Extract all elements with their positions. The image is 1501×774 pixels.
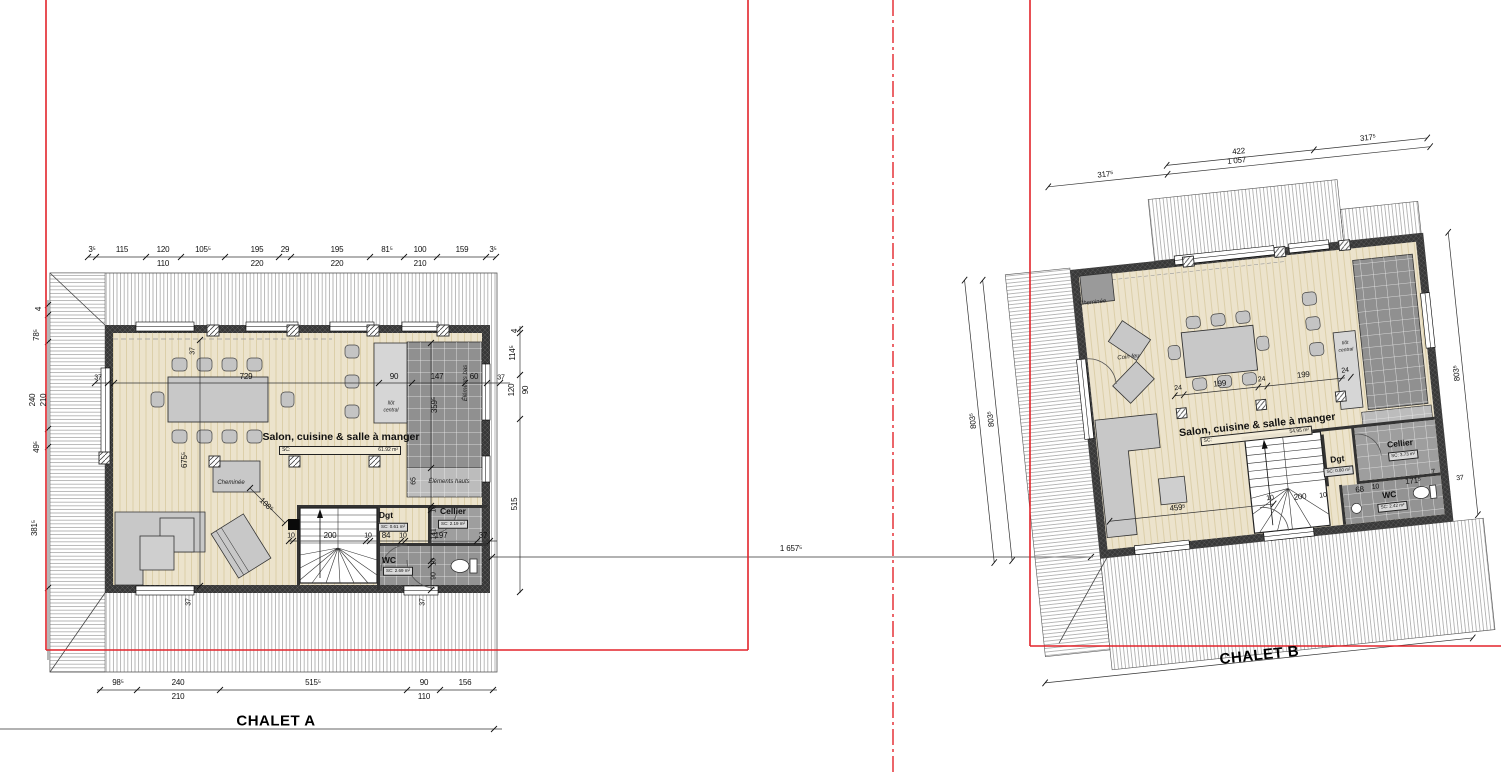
dim-label: 200 xyxy=(1293,493,1307,502)
feature-label-cheminee: Cheminée xyxy=(217,480,244,486)
dim-label: 199 xyxy=(1297,371,1311,380)
dim-label: 37 xyxy=(186,598,193,605)
between-chalets-dim: 1 657⁵ xyxy=(780,545,802,553)
room-label-dgt: Dgt xyxy=(1330,454,1345,464)
dim-label: 210 xyxy=(40,394,48,407)
dim-label: 37 xyxy=(190,347,197,354)
dim-label: 240 xyxy=(29,394,37,407)
feature-label-ilot: Ilôt xyxy=(388,402,395,407)
dim-label: 60 xyxy=(470,373,479,381)
dim-label: 90 xyxy=(431,572,438,579)
dim-label: 195 xyxy=(251,246,264,254)
dim-label: 381⁵ xyxy=(31,520,39,536)
dim-label: 105⁵ xyxy=(195,246,211,254)
feature-label-ilot: central xyxy=(383,409,398,414)
dim-label: 199 xyxy=(1213,379,1227,388)
dim-label: 147 xyxy=(431,373,444,381)
dim-label: 120 xyxy=(508,384,516,397)
dim-label: 24 xyxy=(1258,376,1266,384)
dim-label: 10 xyxy=(1319,492,1327,500)
chalet-b-table xyxy=(1181,325,1257,377)
dim-label: 84 xyxy=(382,532,391,540)
dim-label: 110 xyxy=(157,260,169,268)
dim-label: 10 xyxy=(431,558,438,565)
dim-label: 359⁵ xyxy=(431,397,439,413)
chalet-a-bar-chairs xyxy=(345,345,359,418)
sc-value: 54.95 m² xyxy=(1289,428,1309,435)
dim-label: 37 xyxy=(497,375,504,382)
sc-value: 61.92 m² xyxy=(378,448,398,453)
dim-label: 220 xyxy=(251,260,264,268)
floor-plan-canvas: 3⁵ 115 120 105⁵ 195 29 195 81⁵ 100 159 3… xyxy=(0,0,1501,774)
dim-label: 7 xyxy=(1431,468,1435,475)
dim-label: 675⁵ xyxy=(181,452,189,468)
dim-label: 100 xyxy=(414,246,427,254)
dim-label: 195 xyxy=(331,246,344,254)
dim-label: 120 xyxy=(157,246,170,254)
sc-label: SC: xyxy=(282,448,290,453)
dim-label: 10 xyxy=(1371,483,1379,491)
dim-label: 10 xyxy=(431,505,438,512)
dim-label: 90 xyxy=(522,386,530,395)
sc-label: SC: xyxy=(1203,438,1212,444)
dim-label: 115 xyxy=(116,246,128,254)
dim-label: 10 xyxy=(364,533,371,540)
dim-label: 37 xyxy=(94,375,101,382)
chalet-b-group xyxy=(952,133,1496,690)
dim-label: 317⁵ xyxy=(1360,133,1377,143)
dim-label: 65 xyxy=(411,477,418,484)
dim-label: 24 xyxy=(1341,367,1349,375)
dim-label: 159 xyxy=(456,246,469,254)
dim-label: 240 xyxy=(172,679,185,687)
dim-label: 210 xyxy=(172,693,185,701)
dim-label: 49⁵ xyxy=(33,441,41,453)
dim-label: 803⁵ xyxy=(969,413,979,430)
chalet-a-title: CHALET A xyxy=(236,713,315,730)
dim-label: 3⁵ xyxy=(88,246,95,254)
dim-label: 803⁵ xyxy=(986,411,996,428)
cellier-sc-box: SC: 2.19 m² xyxy=(438,520,468,529)
feature-label-elements-bas: Éléments bas xyxy=(463,365,469,401)
dgt-sc-box: SC: 0.61 m² xyxy=(378,523,408,532)
dim-label: 24 xyxy=(1174,385,1182,393)
dim-label: 81⁵ xyxy=(381,246,393,254)
dim-label: 141 xyxy=(431,528,438,539)
dim-label: 29 xyxy=(281,246,290,254)
dim-label: 37 xyxy=(420,598,427,605)
dim-label: 459⁵ xyxy=(1169,503,1186,513)
dim-label: 37 xyxy=(479,532,488,540)
feature-label-ilot: Ilôt xyxy=(1342,341,1349,347)
dim-label: 68 xyxy=(1355,486,1364,495)
dim-label: 90 xyxy=(420,679,429,687)
chalet-a-table xyxy=(168,377,268,422)
dim-label: 515 xyxy=(511,498,519,511)
wc-sc-box: SC: 2.69 m² xyxy=(383,567,413,576)
chalet-a-toilet xyxy=(451,560,469,573)
dim-label: 114⁵ xyxy=(509,345,517,360)
chalet-a-tech-box xyxy=(288,519,301,530)
room-label-wc: WC xyxy=(1382,490,1397,500)
chalet-a-stairs xyxy=(300,508,377,583)
dim-label: 110 xyxy=(418,693,430,701)
room-label-dgt: Dgt xyxy=(379,511,393,520)
dim-label: 729 xyxy=(240,373,253,381)
dim-label: 220 xyxy=(331,260,344,268)
dim-label: 156 xyxy=(459,679,472,687)
dim-label: 4 xyxy=(35,307,43,311)
salon-sc-box: SC: 61.92 m² xyxy=(279,446,401,455)
dim-label: 210 xyxy=(414,260,427,268)
dim-label: 422 xyxy=(1232,147,1246,156)
dim-label: 200 xyxy=(324,532,337,540)
dim-label: 3⁵ xyxy=(489,246,496,254)
dim-label: 4 xyxy=(511,329,519,333)
dim-label: 10 xyxy=(287,533,294,540)
feature-label-elements-hauts: Éléments hauts xyxy=(428,479,469,485)
dim-label: 10 xyxy=(1266,494,1274,502)
room-label-salon: Salon, cuisine & salle à manger xyxy=(263,432,420,443)
dim-label: 803⁵ xyxy=(1452,365,1462,382)
dim-label: 10 xyxy=(399,533,406,540)
dim-label: 515⁵ xyxy=(305,679,321,687)
dim-label: 317⁵ xyxy=(1097,170,1114,180)
dim-label: 171⁵ xyxy=(1405,477,1422,487)
dim-label: 98⁵ xyxy=(112,679,124,687)
dim-label: 78⁵ xyxy=(33,329,41,341)
dim-label: 90 xyxy=(390,373,399,381)
chalet-b-stairs xyxy=(1245,432,1330,533)
room-label-cellier: Cellier xyxy=(440,507,466,516)
dim-label: 37 xyxy=(1456,475,1464,483)
room-label-wc: WC xyxy=(382,556,396,565)
